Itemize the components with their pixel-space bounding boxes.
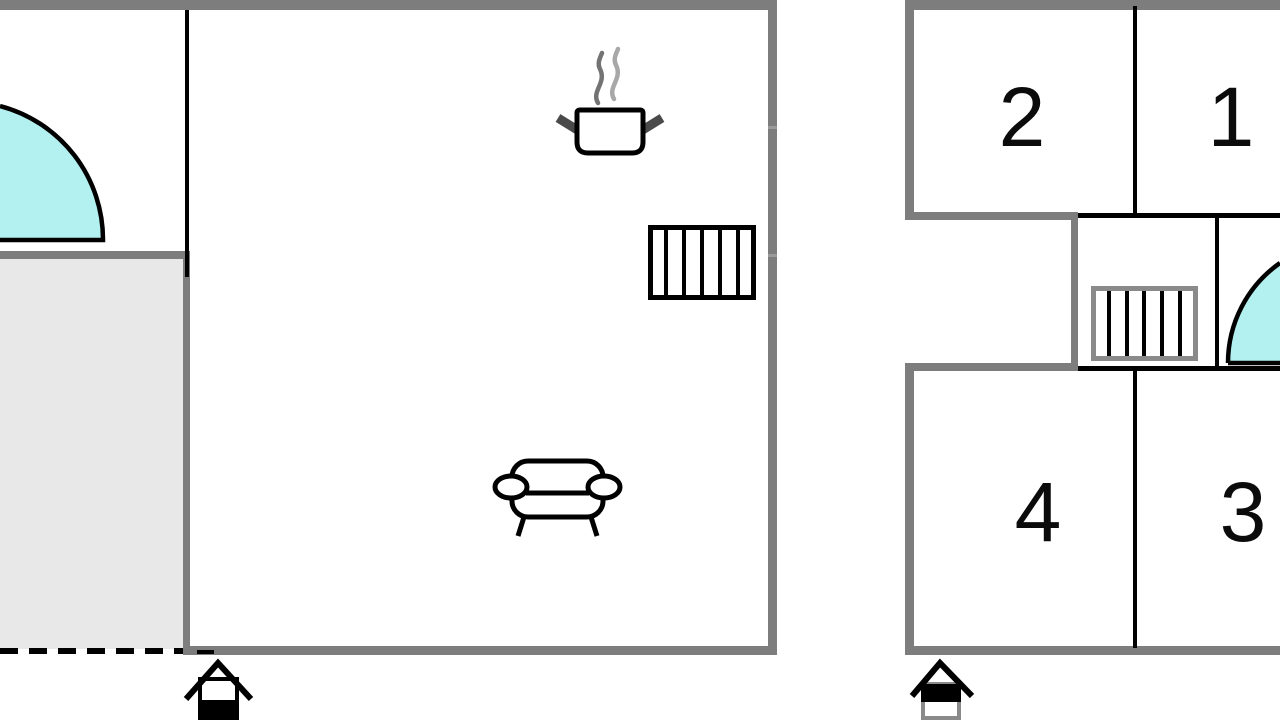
wall-left-lower bbox=[905, 363, 914, 655]
divider-room4-room3 bbox=[1133, 371, 1137, 648]
divider-room2-room1 bbox=[1133, 6, 1137, 215]
room-label-2: 2 bbox=[962, 67, 1082, 167]
wall-room4-top bbox=[905, 363, 1078, 371]
wall-bottom bbox=[905, 646, 1280, 655]
wall-left-upper bbox=[905, 0, 914, 220]
upper-floor-plan: 2 1 4 3 bbox=[0, 0, 1280, 720]
wall-top bbox=[905, 0, 1280, 10]
floor-plan-canvas: 2 1 4 3 bbox=[0, 0, 1280, 720]
room-label-3: 3 bbox=[1183, 462, 1280, 562]
wall-landing-left bbox=[1071, 212, 1078, 370]
room-label-4: 4 bbox=[978, 462, 1098, 562]
house-level-indicator-upper-icon bbox=[905, 655, 981, 720]
wall-room2-bottom bbox=[905, 212, 1078, 220]
room-label-1: 1 bbox=[1171, 67, 1280, 167]
stairs-icon bbox=[1091, 286, 1198, 361]
door-swing-icon bbox=[1220, 215, 1280, 367]
divider-landing-door bbox=[1215, 213, 1219, 371]
